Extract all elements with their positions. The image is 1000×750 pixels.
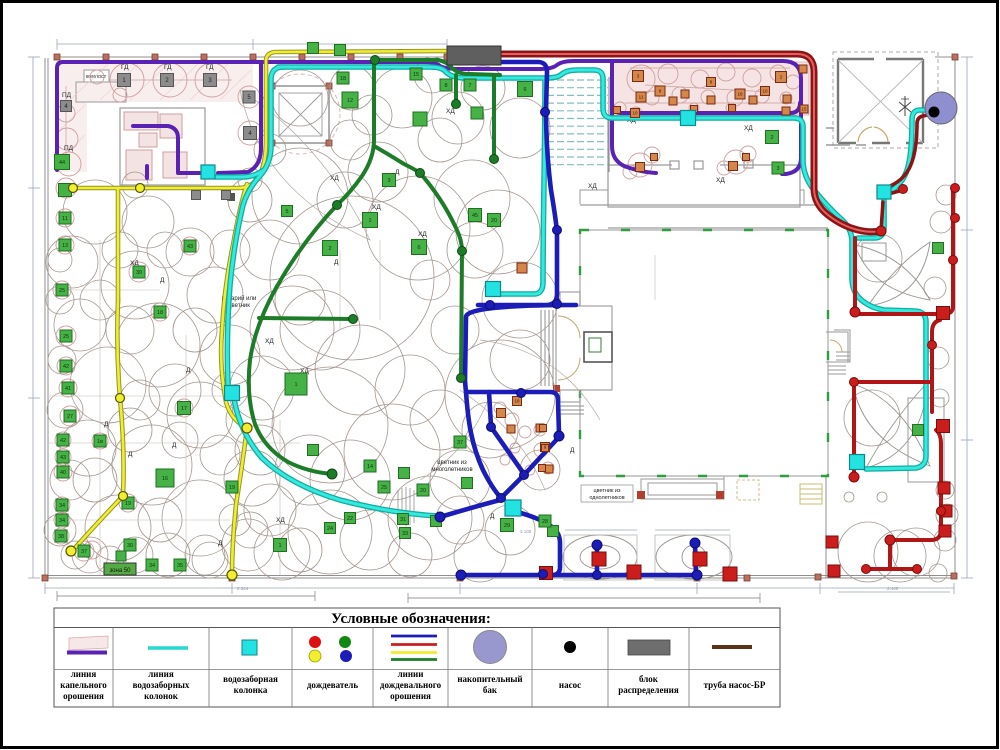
svg-text:8: 8: [444, 83, 447, 89]
svg-text:многолетников: многолетников: [431, 467, 472, 473]
svg-text:6: 6: [417, 245, 420, 251]
svg-text:ПД: ПД: [62, 92, 72, 99]
svg-text:1: 1: [294, 382, 297, 388]
svg-text:31: 31: [400, 517, 406, 523]
svg-text:орошения: орошения: [390, 691, 431, 701]
svg-text:27: 27: [67, 414, 73, 420]
svg-text:линия: линия: [148, 669, 174, 679]
svg-text:2.344: 2.344: [237, 586, 249, 591]
svg-text:ПД: ПД: [64, 145, 74, 152]
svg-text:дождевального: дождевального: [380, 680, 442, 690]
svg-text:Д: Д: [490, 513, 495, 520]
svg-text:25: 25: [59, 288, 65, 294]
svg-text:капельного: капельного: [60, 680, 107, 690]
svg-text:ГД: ГД: [164, 64, 172, 71]
svg-text:11: 11: [62, 216, 68, 222]
svg-text:Условные обозначения:: Условные обозначения:: [331, 611, 491, 627]
svg-text:цветник из: цветник из: [437, 460, 467, 466]
svg-text:16: 16: [162, 476, 168, 482]
svg-text:12: 12: [347, 98, 353, 104]
svg-text:42: 42: [63, 364, 69, 370]
svg-text:38: 38: [58, 534, 64, 540]
svg-text:ГД: ГД: [121, 64, 129, 71]
svg-text:30: 30: [127, 543, 133, 549]
svg-text:6: 6: [523, 87, 526, 93]
svg-text:20: 20: [420, 488, 426, 494]
svg-text:43: 43: [60, 455, 66, 461]
svg-text:ХД: ХД: [265, 338, 274, 345]
svg-text:34: 34: [59, 503, 65, 509]
svg-text:16: 16: [737, 92, 743, 97]
svg-text:ХД: ХД: [276, 517, 285, 524]
svg-text:Д: Д: [172, 442, 177, 449]
svg-text:37: 37: [81, 549, 87, 555]
svg-text:линии: линии: [398, 669, 424, 679]
svg-text:37: 37: [457, 440, 463, 446]
svg-text:ГД: ГД: [206, 64, 214, 71]
svg-text:15: 15: [413, 72, 419, 78]
svg-text:17: 17: [181, 406, 187, 412]
svg-text:Д: Д: [334, 259, 339, 266]
svg-text:14: 14: [367, 464, 373, 470]
svg-text:29: 29: [504, 523, 510, 529]
svg-text:бак: бак: [483, 685, 498, 695]
svg-text:труба насос-БР: труба насос-БР: [704, 680, 766, 690]
svg-text:11: 11: [639, 95, 644, 100]
svg-text:30: 30: [136, 270, 142, 276]
svg-text:Д: Д: [104, 421, 109, 428]
svg-text:35: 35: [177, 563, 183, 569]
svg-text:ХД: ХД: [744, 125, 753, 132]
svg-text:25: 25: [63, 334, 69, 340]
svg-text:распределения: распределения: [618, 685, 679, 695]
svg-text:Д: Д: [160, 277, 165, 284]
svg-text:ХД: ХД: [588, 183, 597, 190]
svg-text:24: 24: [327, 526, 333, 532]
svg-text:насос: насос: [559, 680, 581, 690]
svg-text:43: 43: [187, 244, 193, 250]
svg-text:10: 10: [762, 89, 768, 94]
svg-text:ХД: ХД: [330, 175, 339, 182]
svg-text:ХД: ХД: [446, 108, 455, 115]
svg-text:линия: линия: [71, 669, 97, 679]
svg-text:Д: Д: [128, 451, 133, 458]
svg-text:ХД: ХД: [372, 204, 381, 211]
svg-text:34: 34: [149, 563, 155, 569]
svg-text:13: 13: [62, 243, 68, 249]
svg-text:водозаборных: водозаборных: [133, 680, 190, 690]
svg-text:водозаборная: водозаборная: [223, 674, 278, 684]
svg-text:Д: Д: [186, 367, 191, 374]
svg-text:Д: Д: [570, 447, 575, 454]
svg-text:1: 1: [368, 218, 371, 224]
svg-text:45: 45: [472, 213, 478, 219]
svg-text:блок: блок: [639, 674, 659, 684]
svg-text:1: 1: [278, 543, 281, 549]
svg-text:10: 10: [632, 111, 638, 116]
svg-text:7: 7: [468, 83, 471, 89]
svg-text:42: 42: [60, 438, 66, 444]
svg-text:накопительный: накопительный: [457, 674, 522, 684]
svg-text:18: 18: [514, 399, 520, 404]
svg-text:ХД: ХД: [716, 177, 725, 184]
svg-text:40: 40: [60, 470, 66, 476]
svg-text:18: 18: [157, 310, 163, 316]
svg-text:3: 3: [387, 178, 390, 184]
svg-text:ХД: ХД: [418, 231, 427, 238]
svg-text:34: 34: [59, 518, 65, 524]
svg-text:18: 18: [340, 76, 346, 82]
svg-text:19: 19: [125, 501, 131, 507]
svg-text:41: 41: [65, 386, 71, 392]
svg-text:3: 3: [776, 166, 779, 172]
svg-text:колонок: колонок: [144, 691, 179, 701]
svg-text:Д: Д: [218, 540, 223, 547]
svg-text:5: 5: [285, 209, 288, 215]
svg-text:25: 25: [381, 485, 387, 491]
svg-text:2: 2: [328, 246, 331, 252]
svg-text:колонка: колонка: [234, 685, 268, 695]
svg-text:20: 20: [491, 218, 497, 224]
svg-text:2: 2: [770, 135, 773, 141]
svg-text:дождеватель: дождеватель: [307, 680, 358, 690]
svg-text:15: 15: [801, 107, 807, 112]
svg-text:2.440: 2.440: [887, 586, 899, 591]
svg-text:орошения: орошения: [63, 691, 104, 701]
svg-text:цветник из: цветник из: [593, 488, 621, 494]
svg-text:19: 19: [229, 485, 235, 491]
svg-text:1в: 1в: [97, 439, 103, 445]
svg-text:28: 28: [542, 519, 548, 525]
svg-text:22: 22: [347, 516, 353, 522]
svg-text:зона 50: зона 50: [109, 568, 131, 574]
svg-text:44: 44: [59, 160, 65, 166]
svg-text:3.100: 3.100: [520, 529, 532, 534]
svg-text:однолетников: однолетников: [589, 495, 624, 501]
svg-text:33: 33: [402, 531, 408, 537]
